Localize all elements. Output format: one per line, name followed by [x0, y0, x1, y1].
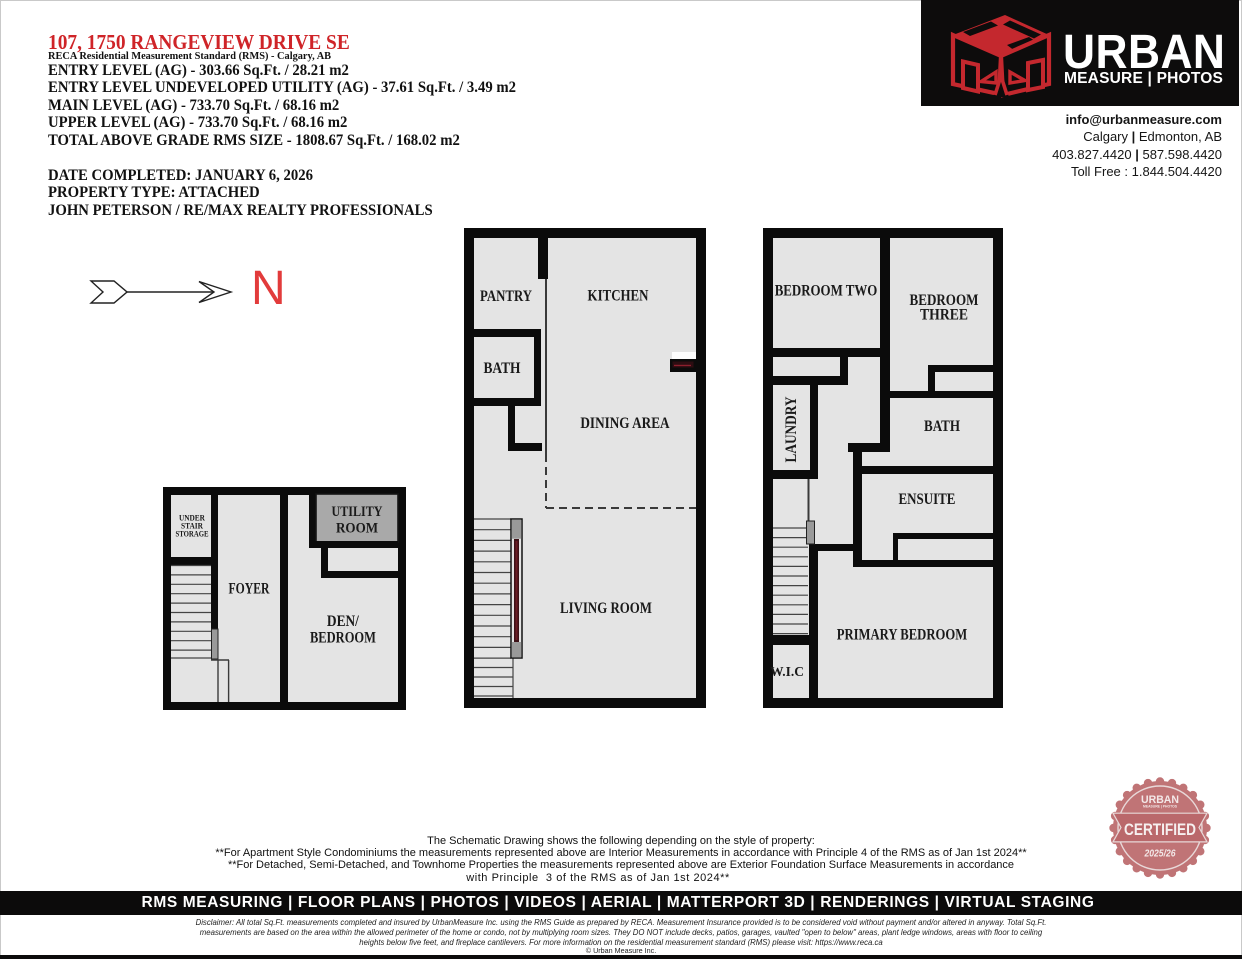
- svg-text:PANTRY: PANTRY: [480, 288, 532, 305]
- svg-text:BATH: BATH: [483, 360, 521, 377]
- svg-text:DEN/: DEN/: [327, 613, 360, 630]
- svg-text:W.I.C: W.I.C: [770, 664, 804, 679]
- svg-text:LAUNDRY: LAUNDRY: [783, 396, 800, 462]
- svg-text:PRIMARY BEDROOM: PRIMARY BEDROOM: [837, 626, 968, 644]
- svg-text:2025/26: 2025/26: [1144, 847, 1176, 859]
- svg-text:BEDROOM: BEDROOM: [310, 629, 376, 647]
- svg-text:STORAGE: STORAGE: [175, 529, 208, 539]
- svg-text:BATH: BATH: [924, 418, 960, 435]
- svg-text:ROOM: ROOM: [336, 520, 378, 536]
- svg-text:FOYER: FOYER: [229, 580, 271, 597]
- svg-text:CERTIFIED: CERTIFIED: [1124, 820, 1196, 839]
- svg-text:UTILITY: UTILITY: [332, 503, 383, 519]
- svg-text:BEDROOM TWO: BEDROOM TWO: [775, 282, 878, 299]
- svg-text:MEASURE | PHOTOS: MEASURE | PHOTOS: [1143, 804, 1177, 808]
- svg-text:DINING AREA: DINING AREA: [580, 415, 670, 432]
- svg-text:THREE: THREE: [920, 307, 968, 324]
- svg-text:KITCHEN: KITCHEN: [588, 287, 650, 304]
- svg-text:LIVING ROOM: LIVING ROOM: [560, 600, 652, 617]
- svg-text:ENSUITE: ENSUITE: [899, 491, 956, 508]
